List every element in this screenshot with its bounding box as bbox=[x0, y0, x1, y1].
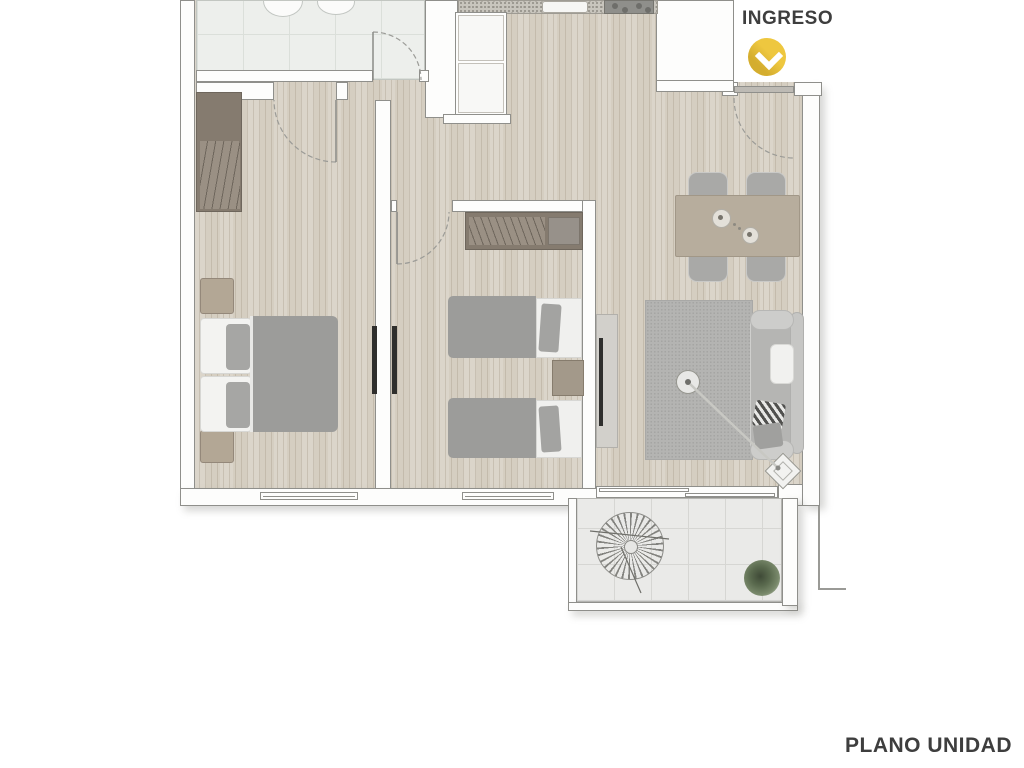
entry-door-arc bbox=[734, 98, 794, 158]
entrance-label: INGRESO bbox=[742, 8, 852, 30]
arc-lamp-base bbox=[776, 466, 781, 471]
entrance-marker-icon bbox=[748, 38, 786, 76]
wicker-chair-leg bbox=[621, 547, 641, 593]
bathroom-door-arc bbox=[373, 32, 421, 80]
floor-plan-canvas: INGRESO PLANO UNIDAD bbox=[0, 0, 1024, 768]
plan-title: PLANO UNIDAD bbox=[820, 734, 1012, 758]
master-door-arc bbox=[274, 100, 336, 162]
door-swing-overlay bbox=[0, 0, 1024, 768]
arc-lamp-arm bbox=[690, 384, 777, 467]
bedroom2-door-arc bbox=[397, 212, 449, 264]
wicker-chair-leg bbox=[590, 531, 669, 539]
